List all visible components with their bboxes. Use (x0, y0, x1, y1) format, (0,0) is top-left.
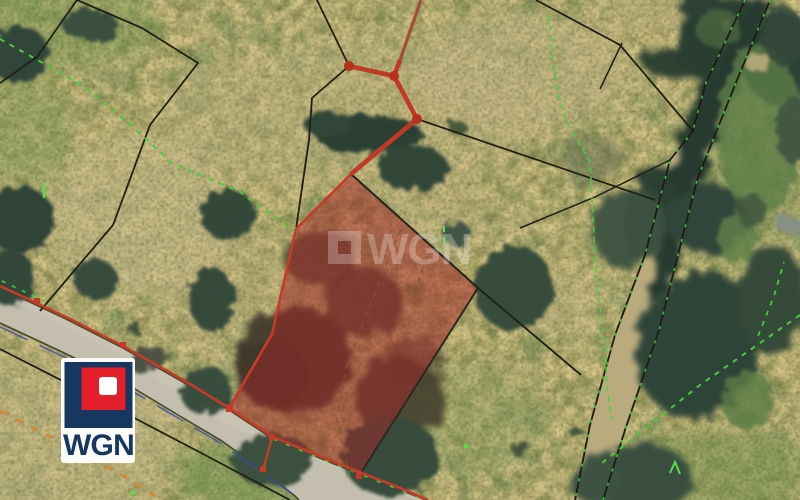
svg-text:WGN: WGN (367, 225, 472, 274)
svg-text:WGN: WGN (63, 429, 134, 462)
